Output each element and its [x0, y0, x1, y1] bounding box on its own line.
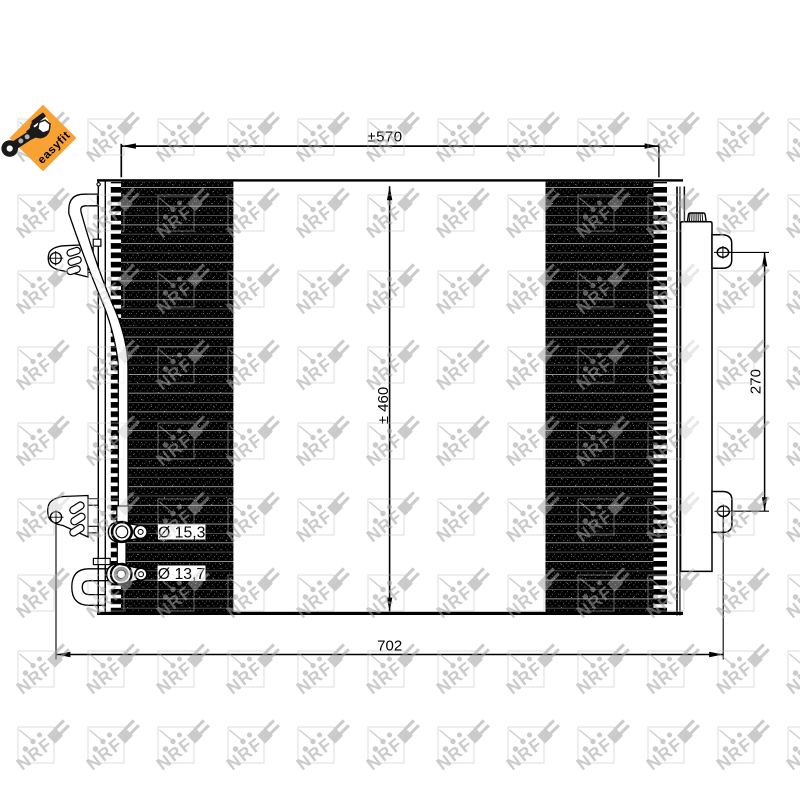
svg-text:702: 702 — [377, 637, 402, 654]
svg-text:± 460: ± 460 — [375, 387, 392, 424]
